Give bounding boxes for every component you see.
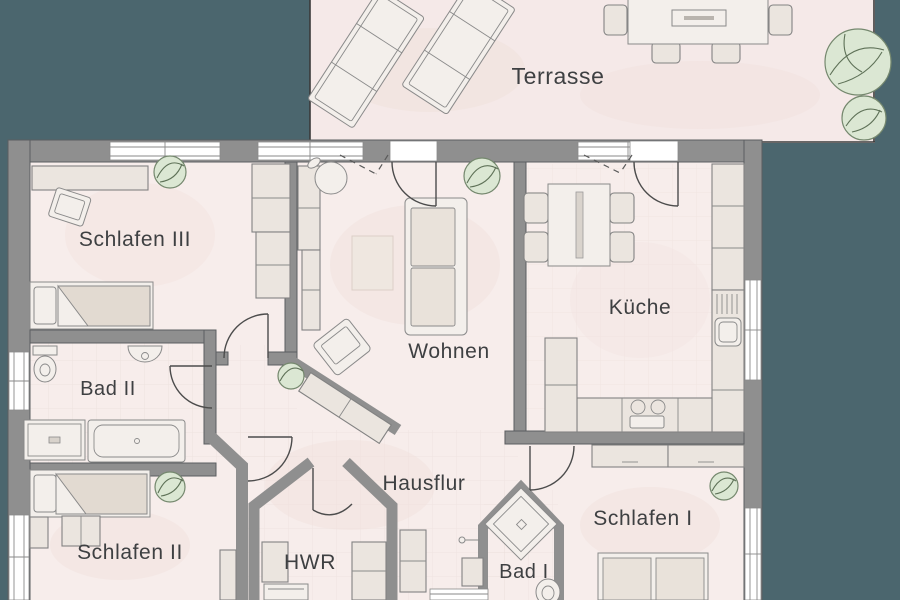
desk bbox=[32, 166, 148, 190]
pillow bbox=[34, 475, 56, 512]
chair bbox=[604, 5, 627, 35]
room-label-hwr: HWR bbox=[284, 551, 336, 574]
chair bbox=[769, 5, 792, 35]
pillow bbox=[34, 287, 56, 324]
towel-bar-knob bbox=[459, 537, 465, 543]
plant-icon bbox=[154, 156, 186, 188]
table-runner bbox=[576, 192, 583, 258]
terrace: Terrasse bbox=[307, 0, 891, 143]
room-label-bad2: Bad II bbox=[80, 378, 136, 400]
small-cabinet bbox=[462, 558, 483, 586]
building: Schlafen III Bad II Schlafen II Wohnen K… bbox=[8, 140, 762, 600]
room-label-kueche: Küche bbox=[609, 296, 672, 319]
bush-icon bbox=[825, 29, 891, 95]
bush-icon bbox=[842, 96, 886, 140]
room-label-hausflur: Hausflur bbox=[383, 472, 466, 495]
toilet-icon bbox=[33, 346, 57, 382]
mattress bbox=[656, 558, 704, 600]
wardrobe bbox=[592, 445, 668, 467]
wardrobe bbox=[668, 445, 744, 467]
tall-cabinet bbox=[712, 164, 744, 290]
wall-kueche-schlafen1 bbox=[505, 431, 744, 444]
window bbox=[258, 142, 363, 160]
room-label-schlafen1: Schlafen I bbox=[593, 507, 692, 530]
plant-icon bbox=[155, 472, 185, 502]
rug bbox=[352, 236, 393, 290]
tray-detail bbox=[684, 16, 714, 20]
window bbox=[9, 515, 29, 600]
bathtub bbox=[88, 420, 185, 462]
window bbox=[745, 280, 761, 380]
plant-icon bbox=[710, 472, 738, 500]
shower bbox=[24, 420, 85, 460]
room-label-wohnen: Wohnen bbox=[408, 340, 489, 363]
wall-corridor-top bbox=[216, 352, 228, 365]
bed bbox=[598, 553, 708, 600]
entry-door-opening bbox=[430, 589, 488, 600]
wall-bad2-hall bbox=[204, 330, 216, 444]
floor-texture bbox=[580, 61, 820, 129]
nightstand bbox=[30, 517, 48, 548]
chair bbox=[652, 42, 680, 63]
room-label-schlafen2: Schlafen II bbox=[77, 541, 183, 564]
chair bbox=[712, 42, 740, 63]
bed bbox=[30, 470, 150, 517]
floor-plan: Terrasse bbox=[0, 0, 900, 600]
chair bbox=[610, 232, 634, 262]
room-label-bad1: Bad I bbox=[499, 561, 549, 583]
window bbox=[745, 508, 761, 600]
room-label-schlafen3: Schlafen III bbox=[79, 228, 191, 251]
window bbox=[9, 352, 29, 410]
cabinet bbox=[220, 550, 236, 600]
room-label-terrasse: Terrasse bbox=[512, 63, 605, 89]
chair bbox=[524, 193, 548, 223]
wall-schlafen3-bad2 bbox=[30, 330, 216, 343]
chair bbox=[610, 193, 634, 223]
sofa bbox=[405, 198, 467, 335]
bed bbox=[30, 282, 153, 329]
mattress bbox=[603, 558, 651, 600]
plant-icon bbox=[464, 158, 500, 194]
washing-machine-icon bbox=[264, 584, 308, 600]
chair bbox=[524, 232, 548, 262]
plant-icon bbox=[278, 363, 304, 389]
floor-plan-canvas: Terrasse bbox=[0, 0, 900, 600]
